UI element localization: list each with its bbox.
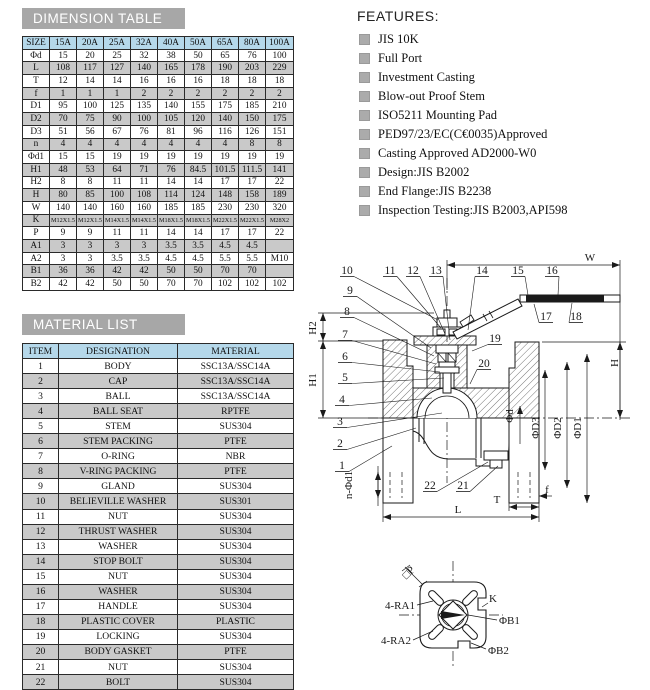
dimension-cell: 120 [185,113,212,126]
material-cell: SUS304 [178,419,294,434]
material-cell: NUT [59,569,178,584]
dimension-cell: 90 [104,113,131,126]
dimension-cell: 85 [77,189,104,202]
material-cell: 14 [23,554,59,569]
dimension-cell: 124 [185,189,212,202]
dimension-cell: 160 [131,201,158,214]
dimension-row: B13636424250507070 [23,265,294,278]
dimension-cell: 50 [131,278,158,291]
dimension-cell: 158 [239,189,266,202]
dimension-cell: 178 [185,62,212,75]
callout-leader [525,277,528,296]
material-cell: 20 [23,644,59,659]
dimension-cell: 165 [158,62,185,75]
dimension-cell: 100 [77,100,104,113]
dimension-cell: M12X1.5 [77,214,104,227]
dimension-row-label: Φd1 [23,151,50,164]
dimension-header-cell: 32A [131,37,158,50]
dimension-cell: 32 [131,49,158,62]
material-cell: SUS304 [178,479,294,494]
callout-number: 14 [476,265,488,277]
dimension-cell: 11 [131,227,158,240]
material-cell: 21 [23,659,59,674]
dimension-cell: 4 [131,138,158,151]
material-row: 8V-RING PACKINGPTFE [23,464,294,479]
dimension-cell: M18X1.5 [185,214,212,227]
material-cell: SUS304 [178,599,294,614]
material-cell: BALL [59,389,178,404]
dimension-cell: 2 [185,87,212,100]
dimension-cell: 135 [131,100,158,113]
dimension-row-label: D3 [23,125,50,138]
dimension-cell: 11 [131,176,158,189]
pad-label-ra2: 4-RA2 [381,635,411,647]
dimension-cell: 17 [212,176,239,189]
material-cell: HANDLE [59,599,178,614]
valve-cross-section-drawing: W H H2 H1 Φd ΦD3 ΦD2 ΦD1 n-Φd1 L T f 101… [290,248,650,560]
dimension-cell: 108 [131,189,158,202]
dimension-cell: 9 [50,227,77,240]
dimension-cell: 16 [158,75,185,88]
material-row: 6STEM PACKINGPTFE [23,434,294,449]
dimension-cell: 127 [104,62,131,75]
material-cell: PTFE [178,464,294,479]
dimension-cell: 2 [266,87,294,100]
material-cell: SUS304 [178,584,294,599]
dimension-cell: 96 [185,125,212,138]
feature-item-label: Full Port [378,51,422,65]
dimension-row: D3515667768196116126151 [23,125,294,138]
dimension-cell: 116 [212,125,239,138]
handle [453,295,620,339]
dimension-cell: 4.5 [212,240,239,253]
dimension-cell: 140 [131,62,158,75]
dimension-cell: 22 [266,176,294,189]
material-row: 16WASHERSUS304 [23,584,294,599]
material-row: 11NUTSUS304 [23,509,294,524]
dimension-cell: 4 [77,138,104,151]
dimension-row-label: H [23,189,50,202]
pad-label-ra1: 4-RA1 [385,600,415,612]
callout-number: 22 [424,480,436,492]
square-bullet-icon [359,53,370,64]
dimension-cell: 81 [158,125,185,138]
material-cell: RPTFE [178,404,294,419]
material-row: 21NUTSUS304 [23,659,294,674]
callout-number: 15 [512,265,524,277]
dimension-cell: 16 [131,75,158,88]
material-cell: 22 [23,675,59,690]
feature-item: Blow-out Proof Stem [357,89,647,103]
dimension-cell: 190 [212,62,239,75]
callout-number: 17 [540,311,552,323]
dimension-cell: 230 [212,201,239,214]
square-bullet-icon [359,72,370,83]
material-row: 9GLANDSUS304 [23,479,294,494]
callout-number: 1 [339,460,345,472]
pad-label-k: K [489,593,497,605]
dimension-cell: 3 [50,240,77,253]
dimension-cell: 3.5 [185,240,212,253]
square-bullet-icon [359,129,370,140]
dimension-cell: 140 [50,201,77,214]
dimension-cell: 1 [50,87,77,100]
dimension-cell: 2 [239,87,266,100]
dimension-cell: 5.5 [239,252,266,265]
dimension-cell: 8 [50,176,77,189]
dimension-cell: 210 [266,100,294,113]
feature-item: JIS 10K [357,32,647,46]
material-cell: 15 [23,569,59,584]
dimension-cell: 14 [158,176,185,189]
dimension-cell: 38 [158,49,185,62]
dimension-cell: 175 [212,100,239,113]
material-row: 13WASHERSUS304 [23,539,294,554]
feature-item-label: Inspection Testing:JIS B2003,API598 [378,203,568,217]
dimension-cell: 2 [131,87,158,100]
material-cell: STOP BOLT [59,554,178,569]
dimension-cell: 3.5 [131,252,158,265]
dimension-cell: 76 [239,49,266,62]
dimension-cell: 67 [104,125,131,138]
dimension-header-cell: 50A [185,37,212,50]
callout-number: 8 [344,306,350,318]
dimension-cell: 48 [50,163,77,176]
material-cell: V-RING PACKING [59,464,178,479]
material-cell: PTFE [178,644,294,659]
dimension-cell: 42 [104,265,131,278]
material-cell: STEM PACKING [59,434,178,449]
dimension-cell: 36 [50,265,77,278]
dimension-cell: 19 [212,151,239,164]
dimension-row: Φd1151519191919191919 [23,151,294,164]
dimension-cell: 70 [239,265,266,278]
callout-leader [534,304,539,323]
dimension-header-cell: 100A [266,37,294,50]
material-cell: SSC13A/SSC14A [178,359,294,374]
feature-item-label: Blow-out Proof Stem [378,89,485,103]
dimension-row-label: H1 [23,163,50,176]
material-cell: 13 [23,539,59,554]
feature-item: ISO5211 Mounting Pad [357,108,647,122]
material-cell: 10 [23,494,59,509]
dimension-cell: 70 [50,113,77,126]
dimension-cell: 185 [158,201,185,214]
material-row: 14STOP BOLTSUS304 [23,554,294,569]
dim-label-d3: ΦD3 [530,417,542,439]
callout-number: 10 [341,265,353,277]
material-cell: LOCKING [59,629,178,644]
dimension-cell: 100 [131,113,158,126]
dimension-cell: 102 [239,278,266,291]
dimension-cell: 117 [77,62,104,75]
material-row: 4BALL SEATRPTFE [23,404,294,419]
material-cell: 3 [23,389,59,404]
dimension-cell: 8 [77,176,104,189]
dimension-cell: 75 [77,113,104,126]
material-cell: O-RING [59,449,178,464]
material-cell: WASHER [59,539,178,554]
dimension-row: D195100125135140155175185210 [23,100,294,113]
square-bullet-icon [359,186,370,197]
material-row: 19LOCKINGSUS304 [23,629,294,644]
dimension-cell: 76 [131,125,158,138]
dimension-cell: 4 [185,138,212,151]
dimension-cell: 42 [77,278,104,291]
material-cell: PLASTIC [178,614,294,629]
dim-label-n-d1: n-Φd1 [343,471,355,499]
callout-number: 13 [430,265,442,277]
dimension-cell: M12X1.5 [50,214,77,227]
dimension-cell: 11 [104,227,131,240]
feature-item-label: End Flange:JIS B2238 [378,184,491,198]
material-cell: 1 [23,359,59,374]
dimension-cell: 65 [212,49,239,62]
dimension-row: P9911111414171722 [23,227,294,240]
material-row: 3BALLSSC13A/SSC14A [23,389,294,404]
material-header-cell: ITEM [23,344,59,359]
callout-leader [354,277,438,321]
dimension-row-label: A1 [23,240,50,253]
material-cell: 2 [23,374,59,389]
dim-label-h2: H2 [307,321,319,334]
feature-item-label: Casting Approved AD2000-W0 [378,146,536,160]
dimension-cell: 3.5 [104,252,131,265]
dimension-cell: M22X1.5 [212,214,239,227]
material-cell: SUS304 [178,509,294,524]
dimension-cell: 14 [185,227,212,240]
callout-number: 12 [407,265,419,277]
dimension-row: T121414161616181818 [23,75,294,88]
feature-item: Inspection Testing:JIS B2003,API598 [357,203,647,217]
dimension-cell: M14X1.5 [104,214,131,227]
dimension-cell: 15 [77,151,104,164]
material-cell: BOLT [59,675,178,690]
dimension-cell: 3 [104,240,131,253]
material-cell: 4 [23,404,59,419]
dimension-cell: 50 [104,278,131,291]
dimension-table-title: DIMENSION TABLE [22,8,185,29]
mounting-pad-drawing: □P 4-RA1 4-RA2 K ΦB1 ΦB2 [375,553,650,690]
callout-leader [558,277,559,296]
material-cell: 8 [23,464,59,479]
material-cell: 7 [23,449,59,464]
dimension-cell: 160 [104,201,131,214]
dimension-header-cell: 20A [77,37,104,50]
dimension-cell: 100 [266,49,294,62]
material-row: 7O-RINGNBR [23,449,294,464]
dimension-cell: 19 [131,151,158,164]
dimension-cell: 185 [239,100,266,113]
features-section: FEATURES: JIS 10KFull PortInvestment Cas… [357,8,647,222]
dim-label-h: H [608,359,620,367]
feature-item-label: Design:JIS B2002 [378,165,469,179]
dimension-cell: 203 [239,62,266,75]
callout-leader [420,277,445,335]
feature-item-label: PED97/23/EC(C€0035)Approved [378,127,547,141]
square-bullet-icon [359,167,370,178]
material-cell: SUS304 [178,554,294,569]
material-cell: SSC13A/SSC14A [178,374,294,389]
pad-label-p: □P [400,564,418,582]
material-cell: GLAND [59,479,178,494]
dimension-cell: M18X1.5 [158,214,185,227]
dimension-cell: 18 [266,75,294,88]
dimension-cell: 150 [239,113,266,126]
material-cell: SSC13A/SSC14A [178,389,294,404]
material-list-title: MATERIAL LIST [22,314,185,335]
dim-label-d2: ΦD2 [552,417,564,438]
material-cell: BELIEVILLE WASHER [59,494,178,509]
square-bullet-icon [359,205,370,216]
dimension-cell: 42 [131,265,158,278]
dimension-cell: 230 [239,201,266,214]
material-row: 17HANDLESUS304 [23,599,294,614]
material-row: 10BELIEVILLE WASHERSUS301 [23,494,294,509]
dim-label-l: L [455,504,462,516]
dimension-cell: M28X2 [266,214,294,227]
dimension-row: H1485364717684.5101.5111.5141 [23,163,294,176]
square-bullet-icon [359,148,370,159]
material-cell: SUS304 [178,659,294,674]
material-cell: SUS304 [178,675,294,690]
material-cell: NUT [59,659,178,674]
pad-label-b2: ΦB2 [488,645,509,657]
dimension-row-label: W [23,201,50,214]
dimension-cell: 100 [104,189,131,202]
dimension-row-label: B1 [23,265,50,278]
dimension-cell: 14 [77,75,104,88]
dimension-row: L108117127140165178190203229 [23,62,294,75]
material-list-table: ITEMDESIGNATIONMATERIAL1BODYSSC13A/SSC14… [22,343,294,690]
material-row: 12THRUST WASHERSUS304 [23,524,294,539]
dimension-cell: 140 [212,113,239,126]
dimension-cell: 19 [266,151,294,164]
dimension-cell: 64 [104,163,131,176]
dimension-cell: 185 [185,201,212,214]
callout-number: 19 [489,333,501,345]
ball-bore [425,396,469,440]
dimension-cell: 15 [50,151,77,164]
dimension-cell: 3 [131,240,158,253]
dim-label-t: T [494,494,501,506]
dimension-row: A2333.53.54.54.55.55.5M10 [23,252,294,265]
dimension-row-label: P [23,227,50,240]
dimension-cell: 70 [158,278,185,291]
dimension-cell: 9 [77,227,104,240]
dimension-cell: 25 [104,49,131,62]
dimension-cell: 175 [266,113,294,126]
dimension-row: A133333.53.54.54.5 [23,240,294,253]
feature-item: End Flange:JIS B2238 [357,184,647,198]
dimension-cell: M22X1.5 [239,214,266,227]
dimension-header-cell: 40A [158,37,185,50]
dimension-cell: 3 [77,240,104,253]
material-cell: STEM [59,419,178,434]
material-cell: WASHER [59,584,178,599]
dimension-cell: 4.5 [185,252,212,265]
dimension-cell: 12 [50,75,77,88]
callout-number: 21 [457,480,469,492]
dimension-header-cell: 15A [50,37,77,50]
dimension-cell: 17 [239,227,266,240]
callout-number: 5 [342,372,348,384]
dim-label-d: Φd [504,409,516,423]
dim-label-h1: H1 [307,373,319,386]
dimension-cell: 155 [185,100,212,113]
dimension-cell: 36 [77,265,104,278]
feature-item-label: JIS 10K [378,32,419,46]
dimension-cell: 4 [50,138,77,151]
callout-number: 4 [339,394,345,406]
dimension-row: D2707590100105120140150175 [23,113,294,126]
dimension-cell: 320 [266,201,294,214]
dimension-cell: 18 [239,75,266,88]
dimension-cell: 102 [212,278,239,291]
dim-label-w: W [585,252,596,264]
material-row: 20BODY GASKETPTFE [23,644,294,659]
dimension-cell: 105 [158,113,185,126]
dimension-cell: 71 [131,163,158,176]
dimension-cell: 1 [104,87,131,100]
dimension-cell: 53 [77,163,104,176]
dimension-row-label: B2 [23,278,50,291]
callout-number: 3 [337,416,343,428]
material-row: 15NUTSUS304 [23,569,294,584]
dimension-header-cell: 25A [104,37,131,50]
dimension-cell: 16 [185,75,212,88]
features-title: FEATURES: [357,8,647,24]
dimension-cell: 4 [104,138,131,151]
dimension-cell: 14 [185,176,212,189]
material-cell: 18 [23,614,59,629]
feature-item: Full Port [357,51,647,65]
dimension-cell: 2 [212,87,239,100]
dimension-cell: 8 [266,138,294,151]
dimension-header-cell: 65A [212,37,239,50]
dimension-row-label: T [23,75,50,88]
dimension-cell: 50 [185,49,212,62]
dim-label-f: f [545,484,549,496]
dimension-cell: 8 [239,138,266,151]
material-header-cell: MATERIAL [178,344,294,359]
features-list: JIS 10KFull PortInvestment CastingBlow-o… [357,32,647,217]
dimension-row: B2424250507070102102102 [23,278,294,291]
dimension-row: KM12X1.5M12X1.5M14X1.5M14X1.5M18X1.5M18X… [23,214,294,227]
material-cell: PTFE [178,434,294,449]
callout-number: 18 [570,311,582,323]
dimension-cell: 17 [239,176,266,189]
callout-number: 7 [342,329,348,341]
dimension-cell: 141 [266,163,294,176]
dimension-cell: 151 [266,125,294,138]
material-cell: NBR [178,449,294,464]
material-cell: SUS304 [178,629,294,644]
dimension-row: H28811111414171722 [23,176,294,189]
material-row: 5STEMSUS304 [23,419,294,434]
dimension-cell: 51 [50,125,77,138]
material-row: 1BODYSSC13A/SSC14A [23,359,294,374]
dimension-cell: 108 [50,62,77,75]
dimension-row-label: D1 [23,100,50,113]
dimension-table: SIZE15A20A25A32A40A50A65A80A100AΦd152025… [22,36,294,291]
feature-item: PED97/23/EC(C€0035)Approved [357,127,647,141]
dimension-cell: 19 [104,151,131,164]
dimension-cell: 111.5 [239,163,266,176]
dimension-cell: 126 [239,125,266,138]
dimension-row: H8085100108114124148158189 [23,189,294,202]
dimension-row: f111222222 [23,87,294,100]
